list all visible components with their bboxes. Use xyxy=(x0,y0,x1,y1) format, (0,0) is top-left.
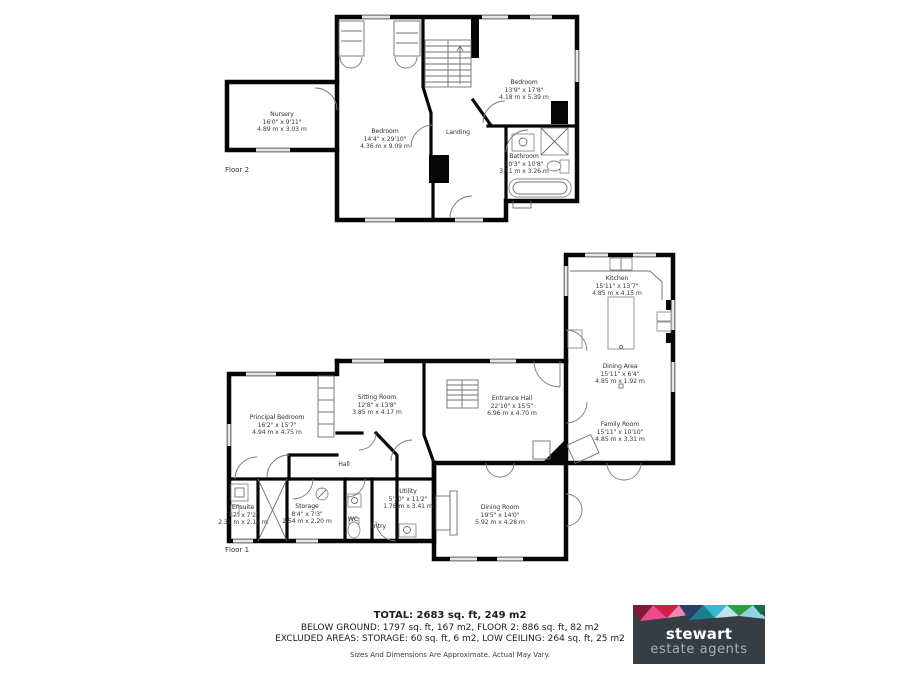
hearth-entrance-hall xyxy=(533,441,550,459)
floor1-stairs xyxy=(447,380,478,408)
footer-total: TOTAL: 2683 sq. ft, 249 m2 xyxy=(0,610,900,621)
room-label-kitchen: Kitchen 15'11" x 13'7" 4.85 m x 4.15 m xyxy=(592,275,642,298)
room-label-bathroom: Bathroom 10'3" x 10'8" 3.11 m x 3.26 m xyxy=(499,153,549,176)
room-label-family-room: Family Room 15'11" x 10'10" 4.85 m x 3.3… xyxy=(595,421,645,444)
bedroom-wardrobe xyxy=(318,376,334,437)
room-label-hall: Hall xyxy=(338,461,349,469)
logo-brand-text: stewart xyxy=(633,626,765,642)
room-label-entry: Entry xyxy=(370,523,386,531)
room-label-sitting-room: Sitting Room 12'8" x 13'8" 3.85 m x 4.17… xyxy=(352,394,402,417)
logo-tagline-text: estate agents xyxy=(633,643,765,657)
room-label-nursery: Nursery 16'0" x 9'11" 4.89 m x 3.03 m xyxy=(257,111,307,134)
hearth-family-room xyxy=(567,435,599,464)
room-label-bedroom-f2: Bedroom 14'4" x 29'10" 4.36 m x 9.09 m xyxy=(360,128,410,151)
footer-excluded-line: EXCLUDED AREAS: STORAGE: 60 sq. ft, 6 m2… xyxy=(0,634,900,644)
room-label-ensuite: Ensuite 7'7" x 7'2" 2.31 m x 2.19 m xyxy=(218,504,268,527)
room-label-principal-bedroom: Principal Bedroom 16'2" x 15'7" 4.94 m x… xyxy=(250,414,305,437)
room-label-storage: Storage 8'4" x 7'3" 2.54 m x 2.20 m xyxy=(282,503,332,526)
floor2-label: Floor 2 xyxy=(225,166,249,174)
agency-logo: stewart estate agents xyxy=(633,605,765,664)
room-label-utility: Utility 5'10" x 11'2" 1.78 m x 3.41 m xyxy=(383,488,433,511)
floorplan-drawing xyxy=(0,0,900,675)
floor1-label: Floor 1 xyxy=(225,546,249,554)
footer-areas-line: BELOW GROUND: 1797 sq. ft, 167 m2, FLOOR… xyxy=(0,623,900,633)
floor2-wardrobes xyxy=(339,21,420,68)
room-label-bedroom2-f2: Bedroom 13'9" x 17'8" 4.18 m x 5.39 m xyxy=(499,79,549,102)
fireplace-dining-room xyxy=(436,496,450,530)
floor2-stairs xyxy=(425,40,471,87)
room-label-landing: Landing xyxy=(446,129,470,137)
kitchen-island xyxy=(608,297,634,349)
room-label-entrance-hall: Entrance Hall 22'10" x 15'5" 6.96 m x 4.… xyxy=(487,395,537,418)
footer-disclaimer: Sizes And Dimensions Are Approximate. Ac… xyxy=(0,651,900,659)
room-label-dining-room: Dining Room 19'5" x 14'0" 5.92 m x 4.28 … xyxy=(475,504,525,527)
room-label-dining-area: Dining Area 15'11" x 6'4" 4.85 m x 1.92 … xyxy=(595,363,645,386)
room-label-wc: WC xyxy=(348,516,358,524)
floor2-doors xyxy=(315,88,528,218)
floorplan-page: Nursery 16'0" x 9'11" 4.89 m x 3.03 m Be… xyxy=(0,0,900,675)
